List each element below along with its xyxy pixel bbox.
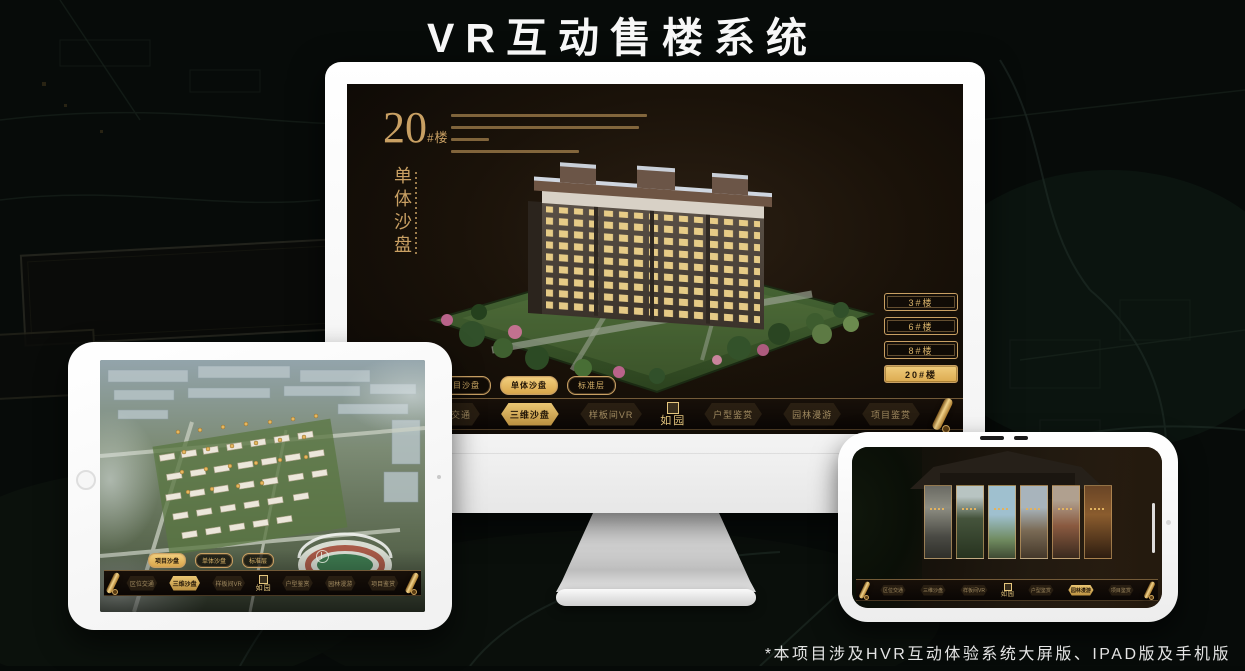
floor-selector: 3#楼 6#楼 8#楼 20#楼 — [884, 293, 958, 383]
floor-button-6[interactable]: 6#楼 — [884, 317, 958, 335]
camera-icon — [1166, 520, 1171, 525]
phone-device: 区位交通 三维沙盘 样板间VR 如园 户型鉴赏 园林漫游 项目鉴赏 — [838, 432, 1178, 622]
brand-logo: 如园 — [660, 402, 686, 427]
heading-subtitle: 单体沙盘 — [389, 166, 415, 258]
floor-button-8[interactable]: 8#楼 — [884, 341, 958, 359]
nav-item-3d-sandbox[interactable]: 三维沙盘 — [168, 576, 202, 591]
subtab-single-sandbox[interactable]: 单体沙盘 — [500, 376, 558, 395]
nav-item-project-view[interactable]: 项目鉴赏 — [1107, 585, 1135, 596]
subtab-standard-floor[interactable]: 标准层 — [567, 376, 616, 395]
monitor-stand-base — [556, 589, 756, 606]
volume-button — [980, 436, 1004, 440]
seal-logo-icon — [667, 402, 679, 414]
home-button[interactable] — [76, 470, 96, 490]
nav-item-garden-roam[interactable]: 园林漫游 — [1067, 585, 1095, 596]
subtab-project-sandbox[interactable]: 项目沙盘 — [148, 553, 186, 568]
building-number-heading: 20#楼 — [383, 106, 449, 150]
scene-gallery — [924, 485, 1112, 559]
scroll-nav-icon-right[interactable] — [409, 572, 415, 594]
nav-item-garden-roam[interactable]: 园林漫游 — [780, 403, 844, 426]
home-indicator[interactable] — [1152, 503, 1155, 553]
nav-item-location[interactable]: 区位交通 — [879, 585, 907, 596]
brand-logo: 如园 — [1001, 583, 1015, 598]
scroll-nav-icon[interactable] — [938, 397, 947, 431]
compass-icon — [316, 550, 329, 563]
scene-panel-garden[interactable] — [956, 485, 984, 559]
nav-item-location[interactable]: 区位交通 — [125, 576, 159, 591]
nav-item-3d-sandbox[interactable]: 三维沙盘 — [919, 585, 947, 596]
tablet-subtabs: 项目沙盘 单体沙盘 标准层 — [148, 553, 274, 568]
nav-item-garden-roam[interactable]: 园林漫游 — [323, 576, 357, 591]
page-title: VR互动售楼系统 — [0, 4, 1245, 64]
building-3d-model[interactable] — [417, 162, 887, 402]
subtab-single-sandbox[interactable]: 单体沙盘 — [195, 553, 233, 568]
nav-item-floorplan[interactable]: 户型鉴赏 — [701, 403, 765, 426]
floor-button-20[interactable]: 20#楼 — [884, 365, 958, 383]
floor-button-3[interactable]: 3#楼 — [884, 293, 958, 311]
volume-button-2 — [1014, 436, 1028, 440]
sandbox-subtabs: 项目沙盘 单体沙盘 标准层 — [433, 376, 616, 395]
nav-item-model-room-vr[interactable]: 样板间VR — [577, 403, 646, 426]
footnote: *本项目涉及HVR互动体验系统大屏版、IPAD版及手机版 — [765, 640, 1231, 664]
subtab-standard-floor[interactable]: 标准层 — [242, 553, 274, 568]
phone-main-nav: 区位交通 三维沙盘 样板间VR 如园 户型鉴赏 园林漫游 项目鉴赏 — [856, 579, 1158, 601]
scene-panel-landscape[interactable] — [988, 485, 1016, 559]
scene-panel-courtyard[interactable] — [924, 485, 952, 559]
scroll-nav-icon-right[interactable] — [1147, 581, 1152, 599]
description-paragraph — [451, 114, 647, 162]
scene-panel-interior[interactable] — [1084, 485, 1112, 559]
brand-logo: 如园 — [256, 575, 272, 592]
nav-item-project-view[interactable]: 项目鉴赏 — [366, 576, 400, 591]
camera-icon — [437, 475, 441, 479]
seal-logo-icon — [1004, 583, 1012, 591]
scene-panel-building[interactable] — [1020, 485, 1048, 559]
nav-item-model-room-vr[interactable]: 样板间VR — [959, 585, 989, 596]
nav-item-model-room-vr[interactable]: 样板间VR — [210, 576, 246, 591]
scroll-nav-icon-left[interactable] — [862, 581, 867, 599]
tablet-device: 项目沙盘 单体沙盘 标准层 区位交通 三维沙盘 样板间VR 如园 户型鉴赏 园林… — [68, 342, 452, 630]
nav-item-floorplan[interactable]: 户型鉴赏 — [280, 576, 314, 591]
nav-item-floorplan[interactable]: 户型鉴赏 — [1027, 585, 1055, 596]
tablet-screen: 项目沙盘 单体沙盘 标准层 区位交通 三维沙盘 样板间VR 如园 户型鉴赏 园林… — [100, 360, 425, 612]
seal-logo-icon — [259, 575, 268, 584]
nav-item-3d-sandbox[interactable]: 三维沙盘 — [498, 403, 562, 426]
nav-item-project-view[interactable]: 项目鉴赏 — [859, 403, 923, 426]
tablet-main-nav: 区位交通 三维沙盘 样板间VR 如园 户型鉴赏 园林漫游 项目鉴赏 — [104, 570, 421, 596]
scene-panel-autumn[interactable] — [1052, 485, 1080, 559]
phone-screen: 区位交通 三维沙盘 样板间VR 如园 户型鉴赏 园林漫游 项目鉴赏 — [852, 447, 1162, 608]
scroll-nav-icon-left[interactable] — [110, 572, 116, 594]
